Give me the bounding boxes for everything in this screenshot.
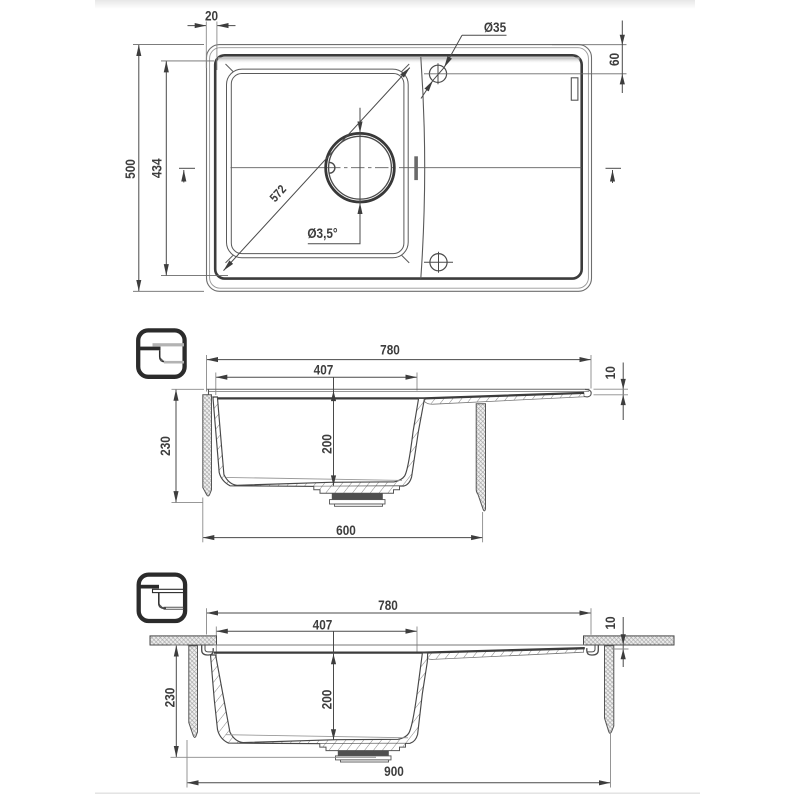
svg-text:900: 900 [384,764,404,779]
svg-text:600: 600 [336,524,356,539]
svg-text:407: 407 [313,618,333,633]
svg-text:Ø3,5°: Ø3,5° [307,226,337,241]
svg-text:60: 60 [607,53,622,66]
svg-text:434: 434 [150,158,165,178]
svg-text:500: 500 [123,159,138,179]
svg-text:200: 200 [320,434,335,454]
svg-text:407: 407 [314,363,334,378]
svg-text:230: 230 [158,436,173,456]
svg-text:572: 572 [268,183,289,205]
svg-text:Ø35: Ø35 [484,21,506,36]
svg-text:200: 200 [320,690,335,710]
svg-text:780: 780 [380,343,400,358]
svg-text:230: 230 [163,688,178,708]
svg-text:10: 10 [604,616,619,629]
svg-text:20: 20 [205,9,218,24]
svg-text:10: 10 [604,366,619,379]
svg-text:780: 780 [378,598,398,613]
